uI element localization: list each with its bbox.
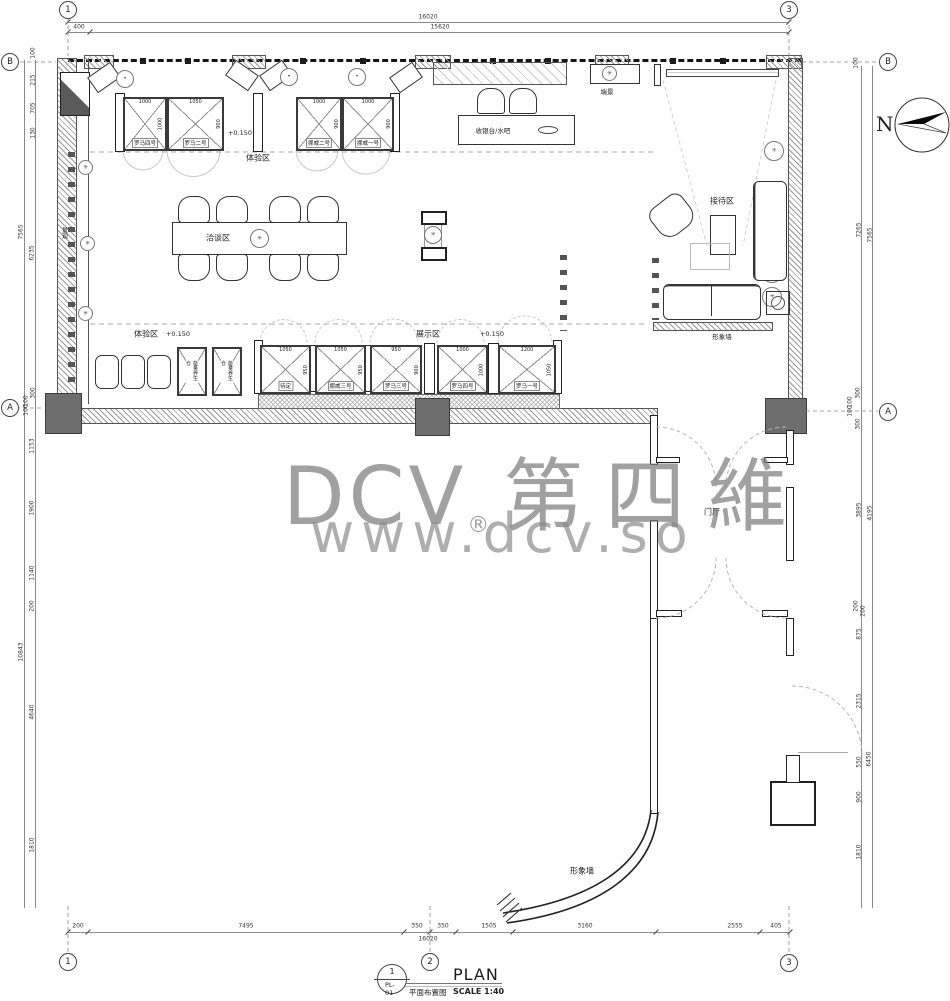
image-wall-label: 形象墙: [712, 331, 732, 341]
negotiation-label: 洽谈区: [206, 233, 230, 244]
display-zone-label: 展示区: [416, 329, 440, 340]
fitting-booth: 1000 900 挪威一号: [342, 97, 394, 151]
display-booth: 1050 950 挪威三号: [315, 345, 366, 394]
stool: •: [116, 70, 134, 88]
booth-height-dim: 1050: [547, 363, 553, 376]
spa-pod: [121, 355, 145, 389]
rug: [690, 243, 730, 270]
booth-name: 罗马三号: [383, 381, 409, 391]
dim-bottom: 3160: [577, 923, 592, 930]
chair: [178, 196, 210, 223]
dim-left: 10843: [18, 642, 25, 661]
booth-name: 罗马一号: [514, 381, 540, 391]
dim-right: 200: [860, 605, 867, 616]
fitting-booth: 1050 900 罗马二号: [167, 97, 224, 151]
plant-icon: ✳: [250, 229, 269, 248]
bar-chair: [477, 88, 505, 114]
titleblock-name-en: PLAN: [453, 965, 499, 984]
north-label: N: [876, 112, 894, 136]
dim-right: 1810: [856, 844, 863, 859]
dim-left: 215: [30, 74, 37, 85]
dim-bottom: 405: [770, 923, 781, 930]
booth-width-dim: 1050: [278, 347, 293, 353]
fitting-booth: 1000 1000 罗马四号: [123, 97, 167, 151]
dim-left: 4640: [29, 704, 36, 719]
landscape-strip: [68, 152, 75, 392]
booth-name: 挪威二号: [306, 138, 332, 148]
booth-width-dim: 1050: [188, 99, 203, 105]
booth-name: 挪威一号: [355, 138, 381, 148]
booth-height-dim: 1000: [479, 363, 485, 376]
booth-name: 罗马二号: [182, 138, 208, 148]
grid-bubble-2-bottom: 2: [421, 953, 439, 971]
booth-height-dim: 900: [386, 119, 392, 129]
dim-right: 900: [856, 791, 863, 802]
titleblock-number: 1: [389, 967, 394, 976]
image-wall-curve-label: 形象墙: [570, 866, 594, 877]
stool: •: [348, 68, 366, 86]
plant-icon: ✳: [80, 236, 95, 251]
plant-icon: ✳: [764, 141, 784, 161]
display-booth: 950 900 罗马三号: [370, 345, 422, 394]
door-swings-display: [260, 316, 552, 343]
grid-leaders: [16, 18, 878, 952]
dim-left: 1140: [29, 565, 36, 580]
sofa-vertical: [753, 181, 787, 281]
chair: [216, 254, 248, 281]
energy-pod-label: 能量养生仓: [185, 360, 199, 383]
sofa-divider: [711, 286, 712, 316]
dim-left: 6235: [29, 245, 36, 260]
foyer-doors: [656, 427, 862, 756]
reception-image-wall: [653, 322, 773, 331]
storefront-post: [654, 64, 661, 86]
dim-bottom: 1505: [481, 923, 496, 930]
dim-bottom-total: 16020: [418, 936, 437, 943]
dim-top-inner: 15620: [430, 24, 449, 31]
dim-left: 300: [30, 387, 37, 398]
plant-icon: ✳: [602, 66, 617, 81]
endview-label: 端景: [601, 86, 614, 96]
spa-pod: [147, 355, 171, 389]
dim-right: 550: [856, 756, 863, 767]
dim-bottom: 7495: [238, 923, 253, 930]
booth-height-dim: 900: [216, 119, 222, 129]
titleblock-divider: [374, 979, 410, 980]
corner-table: [766, 291, 790, 315]
spa-pod: [95, 355, 119, 389]
plant-icon: ✳: [424, 226, 442, 244]
booth-width-dim: 1000: [138, 99, 153, 105]
grid-bubble-A-right: A: [879, 403, 897, 421]
back-cabinet: [433, 62, 567, 85]
chair: [269, 196, 301, 223]
display-booth: 1000 1000 罗马四号: [437, 345, 488, 394]
grid-bubble-3-top: 3: [780, 1, 798, 19]
dim-bottom: 350: [411, 923, 422, 930]
grid-bubble-B-left: B: [1, 53, 19, 71]
dim-right: 100: [847, 405, 854, 416]
dim-right: 300: [855, 418, 862, 429]
dim-left: 705: [30, 102, 37, 113]
dim-left: 200: [29, 600, 36, 611]
bar-chair: [509, 88, 537, 114]
cashier-label: 收银台/水吧: [476, 125, 511, 135]
booth-name: 待定: [278, 381, 293, 391]
grid-bubble-A-left: A: [1, 399, 19, 417]
landscape-label: 景观: [60, 227, 69, 239]
booth-width-dim: 1000: [455, 347, 470, 353]
energy-pod: 能量养生仓: [177, 347, 207, 396]
titleblock-name-cn: 平面布置图: [409, 987, 447, 998]
dim-right: 300: [855, 387, 862, 398]
titleblock-scale: SCALE 1:40: [453, 987, 504, 996]
booth-height-dim: 1000: [158, 118, 164, 131]
booth-height-dim: 900: [334, 119, 340, 129]
column-cap: [421, 247, 447, 261]
sofa-horizontal: [663, 284, 761, 320]
chair: [269, 254, 301, 281]
sink-icon: [538, 126, 558, 134]
chair: [307, 254, 339, 281]
level-mark: +0.150: [480, 330, 504, 338]
dim-top-left: 400: [73, 24, 84, 31]
booth-pier: [253, 93, 263, 152]
display-booth: 1200 1050 罗马一号: [498, 345, 556, 394]
chair: [178, 254, 210, 281]
plant-icon: ✳: [78, 160, 93, 175]
column-cap: [421, 211, 447, 225]
energy-pod: 能量养生仓: [212, 347, 242, 396]
dim-bottom: 200: [72, 923, 83, 930]
stool: •: [280, 68, 298, 86]
grid-bubble-1-bottom: 1: [59, 953, 77, 971]
storefront-blind: [666, 69, 779, 77]
booth-height-dim: 900: [414, 365, 420, 375]
north-arrow: [895, 98, 949, 152]
dim-top-total: 16020: [418, 14, 437, 21]
dim-right: 6450: [866, 751, 873, 766]
grid-bubble-B-right: B: [879, 53, 897, 71]
dim-left: 1153: [29, 438, 36, 453]
experience-zone-label: 体验区: [134, 329, 158, 340]
display-booth: 1050 950 待定: [260, 345, 311, 394]
dim-left: 100: [30, 47, 37, 58]
dim-left: 1810: [29, 837, 36, 852]
chair: [307, 196, 339, 223]
dim-left: 1900: [29, 500, 36, 515]
floor-plan-canvas: 1000 1000 罗马四号 1050 900 罗马二号 1000 900 挪威…: [0, 0, 950, 1001]
booth-width-dim: 1000: [312, 99, 327, 105]
dim-bottom: 2555: [727, 923, 742, 930]
booth-height-dim: 950: [358, 365, 364, 375]
chair: [216, 196, 248, 223]
dim-right: 875: [856, 628, 863, 639]
dim-right: 4195: [867, 505, 874, 520]
curved-wall-endcap: [497, 893, 522, 922]
booth-width-dim: 1000: [361, 99, 376, 105]
display-strip: [652, 258, 659, 320]
dim-right: 100: [853, 57, 860, 68]
booth-pier: [424, 343, 435, 394]
plant-icon: ✳: [78, 306, 93, 321]
level-mark: +0.150: [166, 330, 190, 338]
booth-name: 罗马四号: [449, 381, 475, 391]
booth-width-dim: 1050: [333, 347, 348, 353]
fitting-booth: 1000 900 挪威二号: [296, 97, 342, 151]
booth-width-dim: 1200: [520, 347, 535, 353]
grid-bubble-1-top: 1: [59, 1, 77, 19]
dim-bottom: 350: [437, 923, 448, 930]
dim-right: 7565: [867, 227, 874, 242]
booth-height-dim: 950: [303, 365, 309, 375]
experience-zone-label: 体验区: [246, 153, 270, 164]
dim-right: 2315: [856, 693, 863, 708]
dim-right: 200: [853, 600, 860, 611]
grid-bubble-3-bottom: 3: [780, 954, 798, 972]
booth-width-dim: 950: [390, 347, 402, 353]
reception-label: 接待区: [710, 196, 734, 207]
display-strip: [560, 255, 567, 331]
titleblock-bubble: 1 PL-01: [377, 964, 407, 994]
dim-left: 100: [23, 404, 30, 415]
booth-name: 罗马四号: [132, 138, 158, 148]
dim-right: 7265: [856, 222, 863, 237]
dim-left: 130: [30, 127, 37, 138]
foyer-label: 门厅: [704, 507, 720, 518]
dim-left: 7565: [18, 224, 25, 239]
booth-name: 挪威三号: [327, 381, 353, 391]
titleblock-sheet: PL-01: [385, 981, 399, 997]
dim-right: 3895: [856, 502, 863, 517]
energy-pod-label: 能量养生仓: [220, 360, 234, 383]
level-mark: +0.150: [228, 129, 252, 137]
